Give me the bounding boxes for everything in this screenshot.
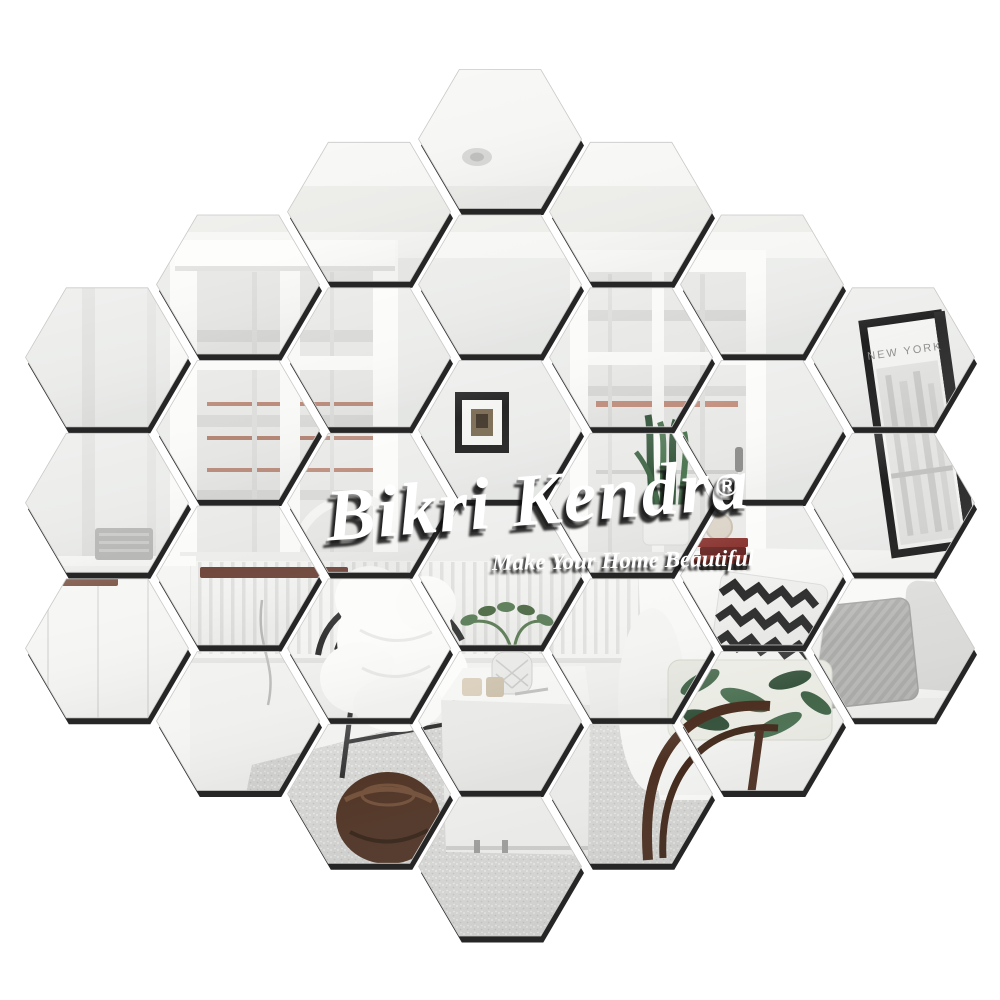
- hexagon-mirror-collage: NEW YORK: [0, 0, 1000, 1000]
- product-photo: NEW YORK Bikri Kendra ® Make Your Home B…: [0, 0, 1000, 1000]
